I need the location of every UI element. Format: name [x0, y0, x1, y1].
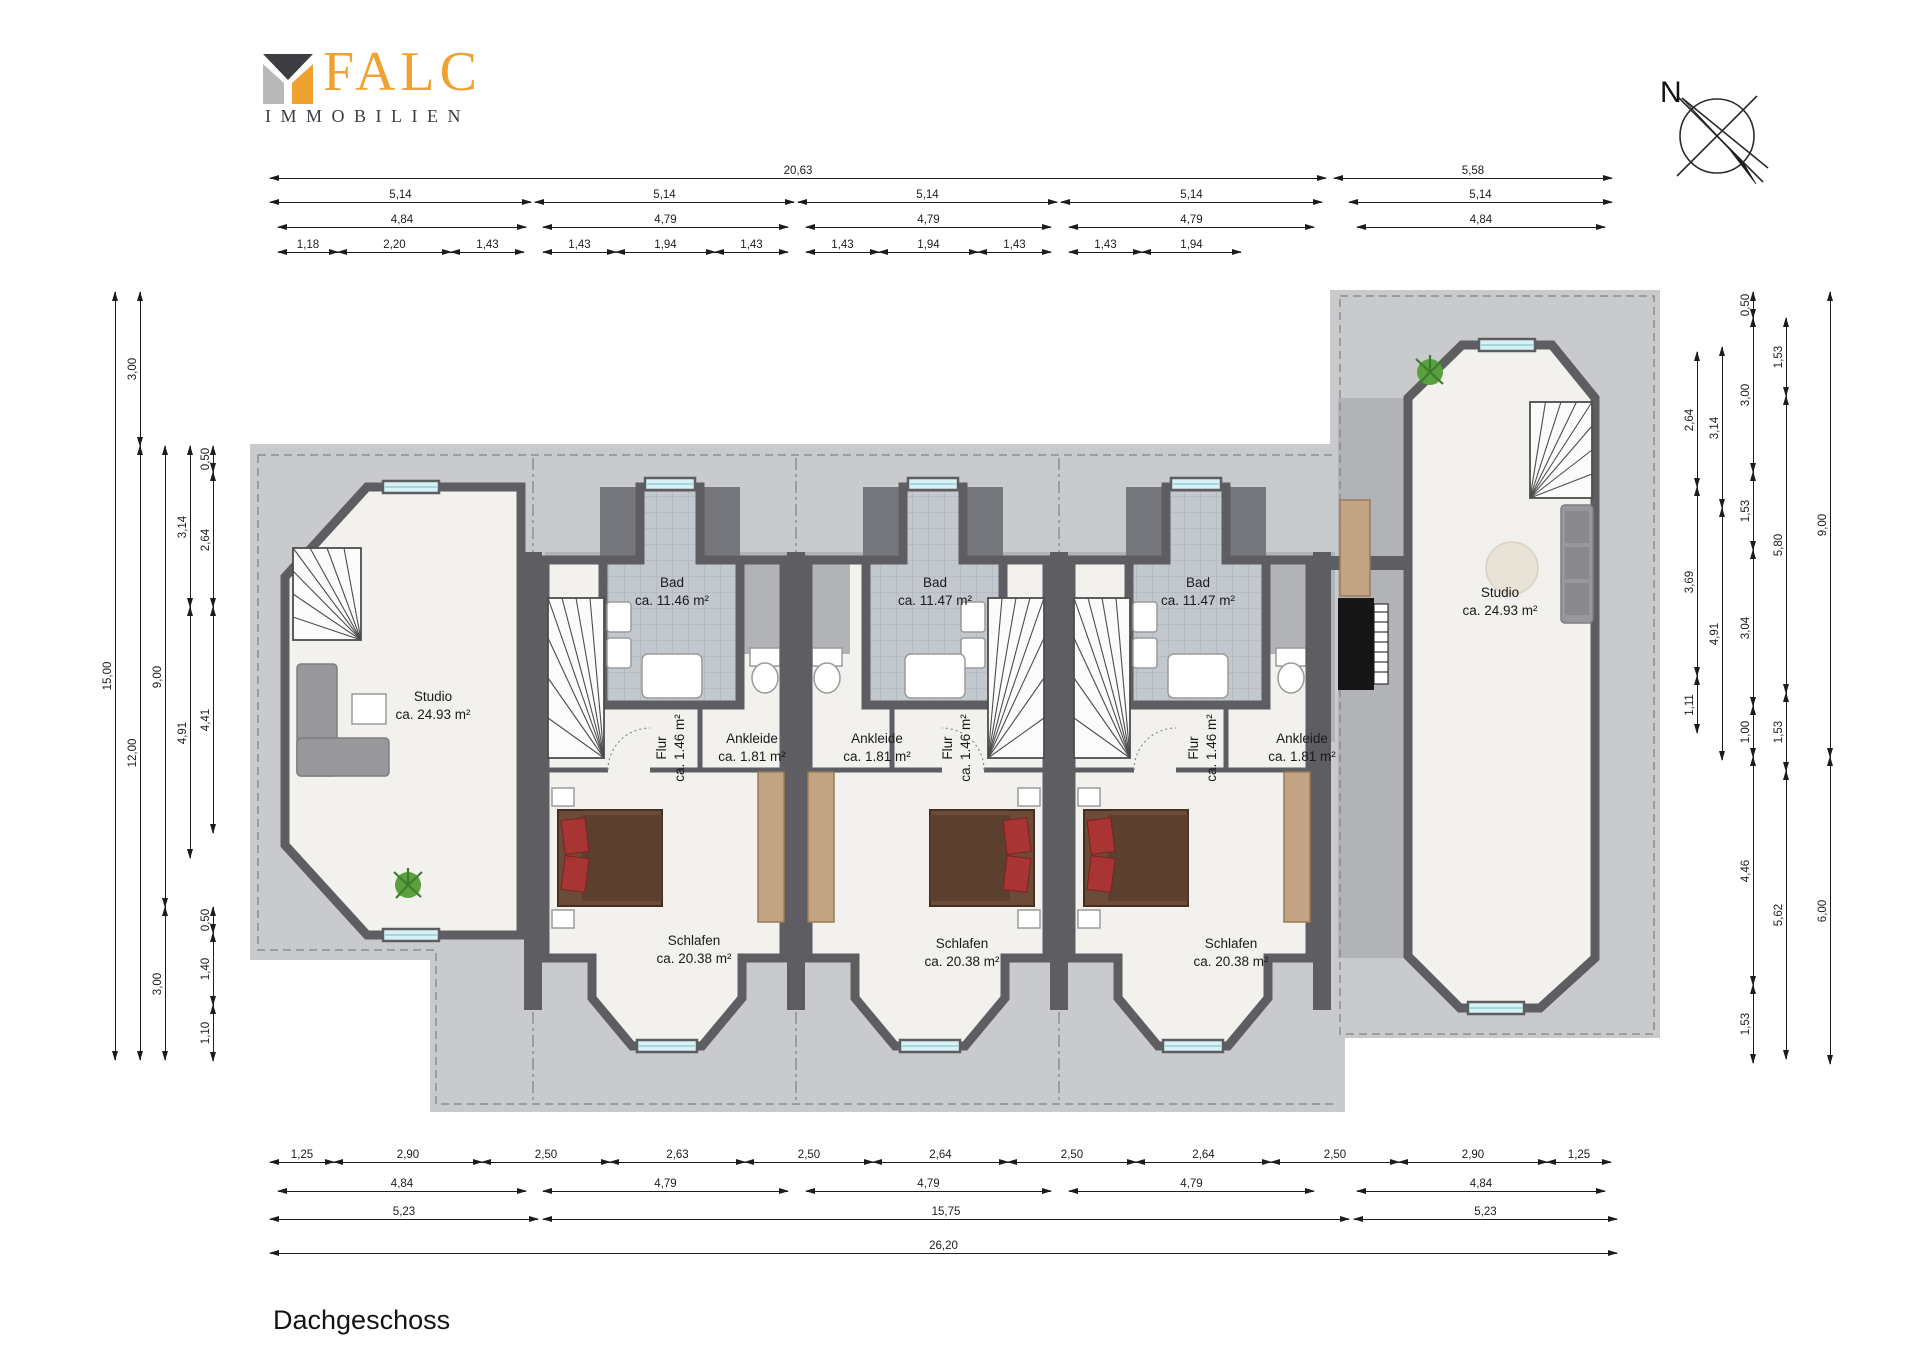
toilet — [1278, 663, 1304, 693]
dimension: 4,91 — [190, 607, 191, 858]
floor-title: Dachgeschoss — [273, 1305, 450, 1336]
sofa-cushion — [1565, 583, 1589, 615]
dimension: 15,75 — [543, 1219, 1349, 1220]
dimension: 3,00 — [140, 292, 141, 446]
room-area: ca. 11.46 m² — [635, 592, 709, 610]
dimension-label: 1,43 — [740, 239, 762, 251]
room-name: Ankleide — [718, 730, 786, 748]
dimension-label: 4,91 — [1709, 623, 1721, 645]
dimension: 4,84 — [1357, 227, 1605, 228]
dimension: 4,79 — [1069, 227, 1314, 228]
party-wall — [1313, 552, 1331, 1010]
sofa-cushion — [1565, 511, 1589, 543]
dimension: 2,50 — [745, 1162, 873, 1163]
room-area: ca. 20.38 m² — [924, 953, 999, 971]
dimension-label: 2,50 — [1324, 1149, 1346, 1161]
dimension: 2,20 — [338, 252, 451, 253]
room-label: Badca. 11.47 m² — [898, 574, 972, 610]
dimension: 4,91 — [1722, 508, 1723, 760]
dimension: 9,00 — [1830, 292, 1831, 757]
dimension: 1,43 — [543, 252, 616, 253]
dimension: 1,53 — [1786, 693, 1787, 771]
dimension: 2,50 — [1271, 1162, 1399, 1163]
nightstand — [552, 910, 574, 928]
room-name: Schlafen — [656, 932, 731, 950]
dimension: 4,84 — [1357, 1191, 1605, 1192]
room-name: Schlafen — [924, 935, 999, 953]
dimension-label: 5,80 — [1773, 533, 1785, 555]
dimension-label: 2,64 — [1192, 1149, 1214, 1161]
room-label: Flurca. 1.46 m² — [939, 714, 975, 782]
dimension: 5,23 — [1354, 1219, 1617, 1220]
dimension-label: 4,79 — [654, 1178, 676, 1190]
bed — [552, 788, 662, 928]
dimension-label: 1,25 — [1568, 1149, 1590, 1161]
bed — [930, 788, 1040, 928]
dimension: 4,84 — [278, 227, 526, 228]
stairs — [1530, 402, 1592, 498]
room-label: Flurca. 1.46 m² — [653, 714, 689, 782]
dimension: 3,14 — [1722, 347, 1723, 508]
dimension: 2,50 — [1008, 1162, 1136, 1163]
room-label: Badca. 11.46 m² — [635, 574, 709, 610]
room-label: Ankleideca. 1.81 m² — [843, 730, 911, 766]
room-area: ca. 24.93 m² — [395, 706, 470, 724]
dimension-label: 4,79 — [1180, 1178, 1202, 1190]
dimension-label: 4,84 — [1470, 214, 1492, 226]
dimension-label: 2,50 — [798, 1149, 820, 1161]
dimension: 2,50 — [482, 1162, 610, 1163]
room-area: ca. 1.81 m² — [1268, 748, 1336, 766]
dimension: 1,43 — [806, 252, 879, 253]
wardrobe — [808, 772, 834, 922]
dimension-label: 1,53 — [1773, 721, 1785, 743]
dimension-label: 5,23 — [393, 1206, 415, 1218]
dimension: 6,00 — [1830, 757, 1831, 1064]
dimension-label: 6,00 — [1817, 899, 1829, 921]
room-area: ca. 1.46 m² — [957, 714, 975, 782]
dimension: 4,79 — [543, 1191, 788, 1192]
dimension: 2,90 — [1399, 1162, 1547, 1163]
washbasin — [607, 602, 631, 632]
dimension: 4,41 — [213, 607, 214, 833]
dimension-label: 5,14 — [916, 189, 938, 201]
dimension-label: 20,63 — [784, 165, 813, 177]
dimension-label: 2,64 — [1684, 408, 1696, 430]
room-area: ca. 20.38 m² — [656, 950, 731, 968]
bathtub — [1168, 654, 1228, 698]
dimension: 2,64 — [1136, 1162, 1271, 1163]
room-name: Ankleide — [843, 730, 911, 748]
dimension-label: 2,64 — [200, 528, 212, 550]
dimension: 5,62 — [1786, 771, 1787, 1059]
nightstand — [1078, 788, 1100, 806]
dimension-label: 0,50 — [200, 909, 212, 931]
piano — [1338, 598, 1388, 690]
room-name: Studio — [1462, 584, 1537, 602]
floorplan-page: FALC IMMOBILIEN N — [0, 0, 1920, 1357]
dimension-label: 5,23 — [1474, 1206, 1496, 1218]
dimension-label: 4,79 — [654, 214, 676, 226]
room-label: Studioca. 24.93 m² — [395, 688, 470, 724]
dimension-label: 15,00 — [102, 662, 114, 691]
dimension-label: 9,00 — [152, 665, 164, 687]
dimension-label: 3,14 — [1709, 416, 1721, 438]
dimension-label: 2,90 — [1462, 1149, 1484, 1161]
nightstand — [1018, 910, 1040, 928]
dimension: 1,11 — [1697, 676, 1698, 733]
dimension-label: 1,40 — [200, 958, 212, 980]
dimension: 3,69 — [1697, 487, 1698, 676]
room-name: Bad — [635, 574, 709, 592]
room-label: Flurca. 1.46 m² — [1185, 714, 1221, 782]
dimension-label: 4,91 — [177, 721, 189, 743]
dimension: 1,10 — [213, 1005, 214, 1061]
nightstand — [1018, 788, 1040, 806]
dimension: 1,43 — [978, 252, 1051, 253]
floorplan-drawing — [0, 0, 1920, 1357]
dimension: 15,00 — [115, 292, 116, 1060]
dimension-label: 0,50 — [200, 448, 212, 470]
dimension: 5,80 — [1786, 396, 1787, 693]
dimension: 1,25 — [1547, 1162, 1611, 1163]
party-wall — [1050, 552, 1068, 1010]
dimension-label: 1,53 — [1773, 346, 1785, 368]
dimension-label: 4,46 — [1740, 860, 1752, 882]
stairs — [293, 548, 361, 640]
room-area: ca. 11.47 m² — [1161, 592, 1235, 610]
dimension-label: 5,62 — [1773, 904, 1785, 926]
dimension: 4,79 — [806, 227, 1051, 228]
dimension: 0,50 — [213, 907, 214, 933]
dimension-label: 5,14 — [389, 189, 411, 201]
dimension: 4,79 — [806, 1191, 1051, 1192]
dimension-label: 1,11 — [1684, 694, 1696, 716]
room-area: ca. 11.47 m² — [898, 592, 972, 610]
dimension: 1,94 — [1142, 252, 1241, 253]
dimension: 5,58 — [1334, 178, 1612, 179]
dimension: 4,46 — [1753, 757, 1754, 985]
dimension-label: 1,43 — [1003, 239, 1025, 251]
dimension-label: 1,25 — [291, 1149, 313, 1161]
dimension-label: 4,84 — [391, 1178, 413, 1190]
dimension-label: 4,79 — [1180, 214, 1202, 226]
room-name: Schlafen — [1193, 935, 1268, 953]
dimension-label: 1,43 — [476, 239, 498, 251]
dimension-label: 1,94 — [1180, 239, 1202, 251]
stairs — [1530, 402, 1592, 498]
dimension: 3,04 — [1753, 550, 1754, 706]
room-area: ca. 1.81 m² — [718, 748, 786, 766]
dimension: 1,94 — [616, 252, 715, 253]
dimension-label: 1,94 — [654, 239, 676, 251]
room-name: Flur — [939, 714, 957, 782]
washbasin — [607, 638, 631, 668]
wardrobe — [758, 772, 784, 922]
dimension-label: 5,14 — [653, 189, 675, 201]
dimension: 5,14 — [798, 202, 1057, 203]
dimension: 1,43 — [451, 252, 524, 253]
toilet — [814, 663, 840, 693]
dimension-label: 2,20 — [383, 239, 405, 251]
dimension: 20,63 — [270, 178, 1326, 179]
dimension-label: 3,69 — [1684, 570, 1696, 592]
dimension-label: 1,43 — [1094, 239, 1116, 251]
dimension: 9,00 — [165, 446, 166, 907]
dimension: 26,20 — [270, 1253, 1617, 1254]
room-area: ca. 1.46 m² — [671, 714, 689, 782]
dimension-label: 5,58 — [1462, 165, 1484, 177]
dimension-label: 3,00 — [152, 972, 164, 994]
bed — [1078, 788, 1188, 928]
dimension: 2,64 — [213, 472, 214, 607]
dimension: 3,00 — [1753, 318, 1754, 472]
room-name: Bad — [1161, 574, 1235, 592]
dimension: 4,79 — [1069, 1191, 1314, 1192]
washbasin — [1133, 638, 1157, 668]
dimension-label: 1,18 — [297, 239, 319, 251]
room-area: ca. 1.81 m² — [843, 748, 911, 766]
wardrobe — [1284, 772, 1310, 922]
room-label: Schlafenca. 20.38 m² — [924, 935, 999, 971]
stairs — [988, 598, 1044, 758]
dimension-label: 1,43 — [568, 239, 590, 251]
room-label: Ankleideca. 1.81 m² — [718, 730, 786, 766]
dimension-label: 2,63 — [666, 1149, 688, 1161]
dimension-label: 2,90 — [397, 1149, 419, 1161]
dimension: 0,50 — [1753, 292, 1754, 318]
dimension-label: 4,41 — [200, 709, 212, 731]
dimension: 5,14 — [1349, 202, 1612, 203]
room-name: Flur — [1185, 714, 1203, 782]
nightstand — [552, 788, 574, 806]
dimension-label: 26,20 — [929, 1240, 958, 1252]
room-label: Schlafenca. 20.38 m² — [1193, 935, 1268, 971]
dimension-label: 3,00 — [127, 358, 139, 380]
dimension: 2,64 — [873, 1162, 1008, 1163]
dimension: 4,79 — [543, 227, 788, 228]
washbasin — [1133, 602, 1157, 632]
dimension: 12,00 — [140, 446, 141, 1060]
stairs — [548, 598, 604, 758]
dimension-label: 5,14 — [1469, 189, 1491, 201]
dimension: 3,00 — [165, 907, 166, 1060]
dimension-label: 12,00 — [127, 739, 139, 768]
dimension: 0,50 — [213, 446, 214, 472]
sofa — [297, 738, 389, 776]
stairs — [293, 548, 361, 640]
room-label: Studioca. 24.93 m² — [1462, 584, 1537, 620]
bathtub — [905, 654, 965, 698]
dimension: 3,14 — [190, 446, 191, 607]
dimension-label: 1,53 — [1740, 1013, 1752, 1035]
room-name: Bad — [898, 574, 972, 592]
party-wall — [787, 552, 805, 1010]
dimension-label: 1,10 — [200, 1022, 212, 1044]
dimension: 5,14 — [535, 202, 794, 203]
dimension-label: 1,53 — [1740, 500, 1752, 522]
dimension: 5,23 — [270, 1219, 538, 1220]
dimension-label: 3,00 — [1740, 384, 1752, 406]
dimension: 2,63 — [610, 1162, 745, 1163]
dimension-label: 2,50 — [535, 1149, 557, 1161]
sofa-cushion — [1565, 547, 1589, 579]
dimension: 1,53 — [1786, 318, 1787, 396]
dimension: 2,90 — [334, 1162, 482, 1163]
bathtub — [642, 654, 702, 698]
dimension-label: 2,50 — [1061, 1149, 1083, 1161]
room-area: ca. 24.93 m² — [1462, 602, 1537, 620]
dimension-label: 0,50 — [1740, 294, 1752, 316]
room-label: Ankleideca. 1.81 m² — [1268, 730, 1336, 766]
dimension: 1,43 — [1069, 252, 1142, 253]
dimension-label: 1,94 — [917, 239, 939, 251]
room-label: Badca. 11.47 m² — [1161, 574, 1235, 610]
dimension: 1,25 — [270, 1162, 334, 1163]
dimension-label: 1,43 — [831, 239, 853, 251]
room-area: ca. 1.46 m² — [1203, 714, 1221, 782]
dimension-label: 3,14 — [177, 515, 189, 537]
dimension: 1,53 — [1753, 472, 1754, 550]
dimension: 1,40 — [213, 933, 214, 1005]
stairs — [1074, 598, 1130, 758]
dimension: 1,94 — [879, 252, 978, 253]
dimension-label: 9,00 — [1817, 513, 1829, 535]
dimension-label: 4,84 — [1470, 1178, 1492, 1190]
dimension: 5,14 — [1061, 202, 1322, 203]
coffee-table — [352, 694, 386, 724]
room-name: Flur — [653, 714, 671, 782]
dimension-label: 3,04 — [1740, 617, 1752, 639]
dimension: 4,84 — [278, 1191, 526, 1192]
room-name: Ankleide — [1268, 730, 1336, 748]
dimension: 1,53 — [1753, 985, 1754, 1063]
dimension-label: 1,00 — [1740, 720, 1752, 742]
dimension-label: 15,75 — [932, 1206, 961, 1218]
dimension-label: 4,79 — [917, 214, 939, 226]
dimension: 5,14 — [270, 202, 531, 203]
toilet — [752, 663, 778, 693]
dimension-label: 5,14 — [1180, 189, 1202, 201]
party-wall — [524, 552, 542, 1010]
dimension-label: 4,79 — [917, 1178, 939, 1190]
sideboard — [1340, 500, 1370, 596]
dimension: 1,18 — [278, 252, 338, 253]
room-label: Schlafenca. 20.38 m² — [656, 932, 731, 968]
dimension: 1,43 — [715, 252, 788, 253]
dimension: 1,00 — [1753, 706, 1754, 757]
nightstand — [1078, 910, 1100, 928]
room-name: Studio — [395, 688, 470, 706]
room-area: ca. 20.38 m² — [1193, 953, 1268, 971]
dimension-label: 4,84 — [391, 214, 413, 226]
dimension: 2,64 — [1697, 352, 1698, 487]
dimension-label: 2,64 — [929, 1149, 951, 1161]
